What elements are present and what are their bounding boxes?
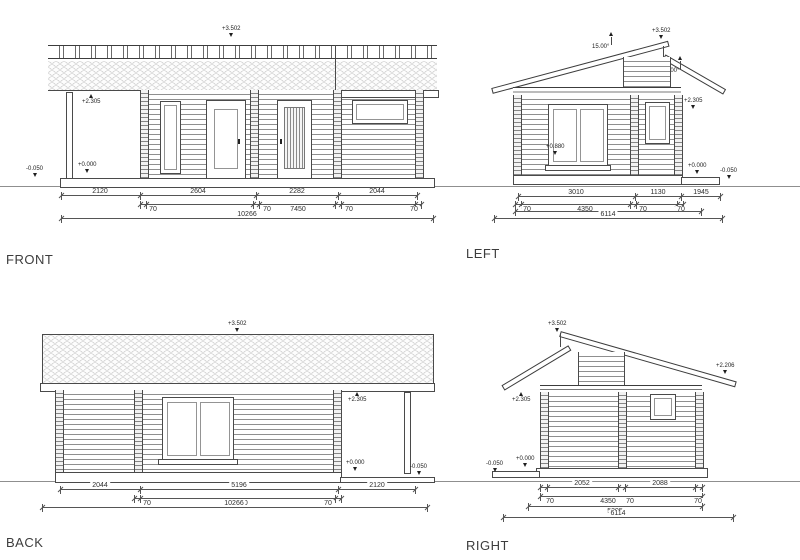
back-ground-marker: -0.050 bbox=[410, 464, 427, 475]
dim-tick bbox=[427, 504, 428, 512]
dim-label: 7450 bbox=[288, 206, 308, 213]
dim-label: 2604 bbox=[188, 188, 208, 195]
right-ground-marker-value: -0.050 bbox=[486, 461, 503, 467]
left-window-sill bbox=[545, 165, 611, 171]
dim-tick bbox=[140, 201, 141, 209]
angle-leader-line bbox=[611, 37, 612, 45]
left-clerestory-logs bbox=[623, 57, 671, 87]
angle-leader-line bbox=[680, 61, 681, 69]
front-roof-step-line bbox=[335, 45, 336, 90]
right-eave-marker: +2.206 bbox=[716, 363, 735, 374]
right-porch-eave-marker-value: +2.305 bbox=[512, 397, 531, 403]
back-eave-marker-value: +2.305 bbox=[348, 397, 367, 403]
front-ground-marker: -0.050 bbox=[26, 166, 43, 177]
dim-tick bbox=[42, 504, 43, 512]
porch-post-back bbox=[404, 392, 411, 474]
dim-tick bbox=[341, 201, 342, 209]
right-floor-marker: +0.000 bbox=[516, 456, 535, 467]
front-eave-marker-value: +2.305 bbox=[82, 99, 101, 105]
dim-label: 10266 bbox=[235, 211, 258, 218]
drawing-canvas: +3.502 +2.305 +0.000 bbox=[0, 0, 800, 560]
back-porch-slab bbox=[340, 477, 435, 483]
dim-label: 70 bbox=[147, 206, 159, 213]
dim-label: 70 bbox=[624, 498, 636, 505]
dim-tick bbox=[702, 503, 703, 511]
front-deck bbox=[60, 178, 435, 188]
front-ground-marker-value: -0.050 bbox=[26, 166, 43, 172]
arrow-down-icon bbox=[555, 328, 559, 332]
front-roof-shingles bbox=[48, 61, 437, 91]
left-ridge-marker: +3.502 bbox=[652, 28, 671, 39]
front-door-glazed-handle bbox=[280, 139, 282, 144]
arrow-up-icon bbox=[609, 32, 613, 36]
left-eave-marker: +2.305 bbox=[684, 98, 703, 109]
right-peak-face bbox=[560, 333, 561, 347]
dim-label: 70 bbox=[261, 206, 273, 213]
left-sill-marker: +0.880 bbox=[546, 144, 565, 155]
right-terrace-slab bbox=[492, 471, 540, 478]
dim-label: 70 bbox=[141, 500, 153, 507]
dim-tick bbox=[259, 201, 260, 209]
dim-tick bbox=[421, 201, 422, 209]
dim-label: 6114 bbox=[608, 510, 627, 517]
front-floor-marker: +0.000 bbox=[78, 162, 97, 173]
front-window-tall bbox=[160, 101, 181, 174]
dim-tick bbox=[256, 192, 257, 200]
right-view-label: RIGHT bbox=[466, 538, 509, 553]
right-porch-eave-marker: +2.305 bbox=[512, 392, 531, 403]
left-porch-slab bbox=[681, 177, 720, 185]
left-corner-trim-3 bbox=[674, 95, 683, 175]
left-corner-trim-2 bbox=[630, 95, 639, 175]
back-window-sill bbox=[158, 459, 238, 465]
right-clerestory-logs bbox=[578, 352, 625, 385]
arrow-down-icon bbox=[353, 467, 357, 471]
arrow-down-icon bbox=[33, 173, 37, 177]
dim-label: 2052 bbox=[572, 480, 592, 487]
dim-tick bbox=[625, 484, 626, 492]
dim-tick bbox=[681, 193, 682, 201]
dim-tick bbox=[433, 215, 434, 223]
dim-label: 70 bbox=[544, 498, 556, 505]
left-window-small bbox=[645, 102, 670, 144]
dim-tick bbox=[253, 201, 254, 209]
dim-label: 2044 bbox=[90, 482, 110, 489]
arrow-up-icon bbox=[89, 94, 93, 98]
arrow-down-icon bbox=[523, 463, 527, 467]
right-corner-trim-1 bbox=[540, 392, 549, 468]
left-window-large bbox=[548, 104, 608, 167]
dim-tick bbox=[335, 201, 336, 209]
back-corner-trim-1 bbox=[55, 390, 64, 472]
dim-tick bbox=[417, 192, 418, 200]
left-roof-angle-1: 15.00° bbox=[592, 44, 609, 50]
dim-label: 2120 bbox=[367, 482, 387, 489]
front-door-panel-inset bbox=[214, 109, 238, 169]
back-corner-trim-3 bbox=[333, 390, 342, 472]
dim-tick bbox=[61, 192, 62, 200]
arrow-down-icon bbox=[659, 35, 663, 39]
dim-tick bbox=[134, 495, 135, 503]
arrow-down-icon bbox=[229, 33, 233, 37]
back-eave-marker: +2.305 bbox=[348, 392, 367, 403]
front-corner-trim-4 bbox=[415, 90, 424, 178]
front-door-panel bbox=[206, 100, 246, 180]
dim-label: 70 bbox=[343, 206, 355, 213]
dim-tick bbox=[341, 495, 342, 503]
dim-label: 10266 bbox=[222, 500, 245, 507]
front-window-horizontal bbox=[352, 100, 408, 124]
dim-tick bbox=[338, 486, 339, 494]
right-dim-row-2: 70 4350 70 70 bbox=[540, 496, 702, 497]
dim-tick bbox=[140, 486, 141, 494]
dim-label: 6114 bbox=[598, 211, 617, 218]
front-corner-trim-2 bbox=[250, 90, 259, 178]
right-dim-total: 6114 bbox=[503, 517, 733, 518]
arrow-up-icon bbox=[678, 56, 682, 60]
dim-label: 2088 bbox=[650, 480, 670, 487]
left-base-slab bbox=[513, 175, 683, 185]
dim-tick bbox=[630, 201, 631, 209]
left-dim-row-2: 70 4350 70 70 bbox=[515, 204, 683, 205]
dim-label: 2044 bbox=[367, 188, 387, 195]
dim-tick bbox=[733, 514, 734, 522]
front-ridge-marker-value: +3.502 bbox=[222, 26, 241, 32]
left-dim-total: 6114 bbox=[494, 218, 722, 219]
back-ground-marker-value: -0.050 bbox=[410, 464, 427, 470]
arrow-down-icon bbox=[493, 468, 497, 472]
porch-post-front bbox=[66, 92, 73, 180]
dim-tick bbox=[540, 484, 541, 492]
dim-tick bbox=[518, 193, 519, 201]
dim-tick bbox=[720, 193, 721, 201]
dim-tick bbox=[494, 215, 495, 223]
left-corner-trim-1 bbox=[513, 95, 522, 175]
back-floor-marker: +0.000 bbox=[346, 460, 365, 471]
left-dim-row-1: 3010 1130 1945 bbox=[518, 196, 720, 197]
front-view-label: FRONT bbox=[6, 252, 53, 267]
arrow-down-icon bbox=[417, 471, 421, 475]
front-door-panel-handle bbox=[238, 139, 240, 144]
arrow-down-icon bbox=[695, 170, 699, 174]
back-dim-row-2: 70 7450 70 bbox=[134, 498, 341, 499]
left-angle1-arrow bbox=[609, 32, 613, 45]
right-ridge-marker-value: +3.502 bbox=[548, 321, 567, 327]
dim-tick bbox=[547, 484, 548, 492]
dim-tick bbox=[335, 495, 336, 503]
back-dim-row-1: 2044 5196 2120 bbox=[60, 489, 415, 490]
left-eave-marker-value: +2.305 bbox=[684, 98, 703, 104]
dim-tick bbox=[702, 484, 703, 492]
front-door-glazed-slats bbox=[284, 107, 305, 169]
arrow-down-icon bbox=[85, 169, 89, 173]
dim-tick bbox=[722, 215, 723, 223]
dim-label: 5196 bbox=[229, 482, 249, 489]
right-ground-marker: -0.050 bbox=[486, 461, 503, 472]
dim-tick bbox=[528, 503, 529, 511]
left-window-large-pane-2 bbox=[580, 109, 604, 162]
back-ridge-marker-value: +3.502 bbox=[228, 321, 247, 327]
back-ridge-marker: +3.502 bbox=[228, 321, 247, 332]
left-floor-marker: +0.000 bbox=[688, 163, 707, 174]
front-floor-marker-value: +0.000 bbox=[78, 162, 97, 168]
front-dim-total: 10266 bbox=[61, 218, 433, 219]
arrow-down-icon bbox=[553, 151, 557, 155]
dim-label: 3010 bbox=[566, 189, 586, 196]
arrow-down-icon bbox=[235, 328, 239, 332]
right-window-small bbox=[650, 394, 676, 420]
right-eave-marker-value: +2.206 bbox=[716, 363, 735, 369]
right-dim-row-1: 2052 2088 bbox=[540, 487, 702, 488]
right-porch-roof bbox=[501, 345, 571, 390]
front-dim-row-2: 70 70 7450 70 70 bbox=[140, 204, 421, 205]
dim-tick bbox=[140, 192, 141, 200]
left-floor-marker-value: +0.000 bbox=[688, 163, 707, 169]
arrow-up-icon bbox=[355, 392, 359, 396]
dim-label: 1130 bbox=[648, 189, 667, 196]
front-door-glazed bbox=[277, 100, 312, 180]
left-sill-marker-value: +0.880 bbox=[546, 144, 565, 150]
left-ridge-marker-value: +3.502 bbox=[652, 28, 671, 34]
dim-tick bbox=[61, 215, 62, 223]
front-window-horizontal-pane bbox=[356, 104, 404, 120]
right-corner-trim-3 bbox=[695, 392, 704, 468]
front-dim-row-1: 2120 2604 2282 2044 bbox=[61, 195, 417, 196]
right-ridge-marker: +3.502 bbox=[548, 321, 567, 332]
front-eave-marker: +2.305 bbox=[82, 94, 101, 105]
back-window-pane-2 bbox=[200, 402, 230, 456]
back-corner-trim-2 bbox=[134, 390, 143, 472]
dim-tick bbox=[635, 193, 636, 201]
front-corner-trim-3 bbox=[333, 90, 342, 178]
dim-tick bbox=[503, 514, 504, 522]
left-ground-marker-value: -0.050 bbox=[720, 168, 737, 174]
back-roof-shingles bbox=[42, 334, 434, 385]
front-window-tall-pane bbox=[164, 105, 177, 170]
back-window-large bbox=[162, 397, 234, 461]
back-view-label: BACK bbox=[6, 535, 43, 550]
back-floor-marker-value: +0.000 bbox=[346, 460, 365, 466]
right-dim-sub: 5395 bbox=[528, 506, 702, 507]
dim-label: 4350 bbox=[598, 498, 618, 505]
front-ridge-marker: +3.502 bbox=[222, 26, 241, 37]
arrow-down-icon bbox=[727, 175, 731, 179]
dim-tick bbox=[338, 192, 339, 200]
dim-label: 70 bbox=[408, 206, 420, 213]
dim-tick bbox=[515, 208, 516, 216]
right-window-small-pane bbox=[654, 398, 672, 416]
right-base-slab bbox=[536, 468, 708, 478]
dim-tick bbox=[618, 484, 619, 492]
dim-tick bbox=[695, 484, 696, 492]
dim-tick bbox=[540, 493, 541, 501]
left-ground-marker: -0.050 bbox=[720, 168, 737, 179]
dim-label: 70 bbox=[322, 500, 334, 507]
front-corner-trim-1 bbox=[140, 90, 149, 178]
arrow-up-icon bbox=[519, 392, 523, 396]
arrow-down-icon bbox=[723, 370, 727, 374]
dim-tick bbox=[415, 486, 416, 494]
dim-tick bbox=[701, 208, 702, 216]
left-view-label: LEFT bbox=[466, 246, 500, 261]
left-window-small-pane bbox=[649, 106, 666, 140]
back-window-pane-1 bbox=[167, 402, 197, 456]
dim-label: 2120 bbox=[90, 188, 110, 195]
dim-label: 2282 bbox=[287, 188, 307, 195]
back-dim-total: 10266 bbox=[42, 507, 427, 508]
right-corner-trim-2 bbox=[618, 392, 627, 468]
dim-tick bbox=[60, 486, 61, 494]
right-floor-marker-value: +0.000 bbox=[516, 456, 535, 462]
dim-label: 1945 bbox=[691, 189, 711, 196]
arrow-down-icon bbox=[691, 105, 695, 109]
